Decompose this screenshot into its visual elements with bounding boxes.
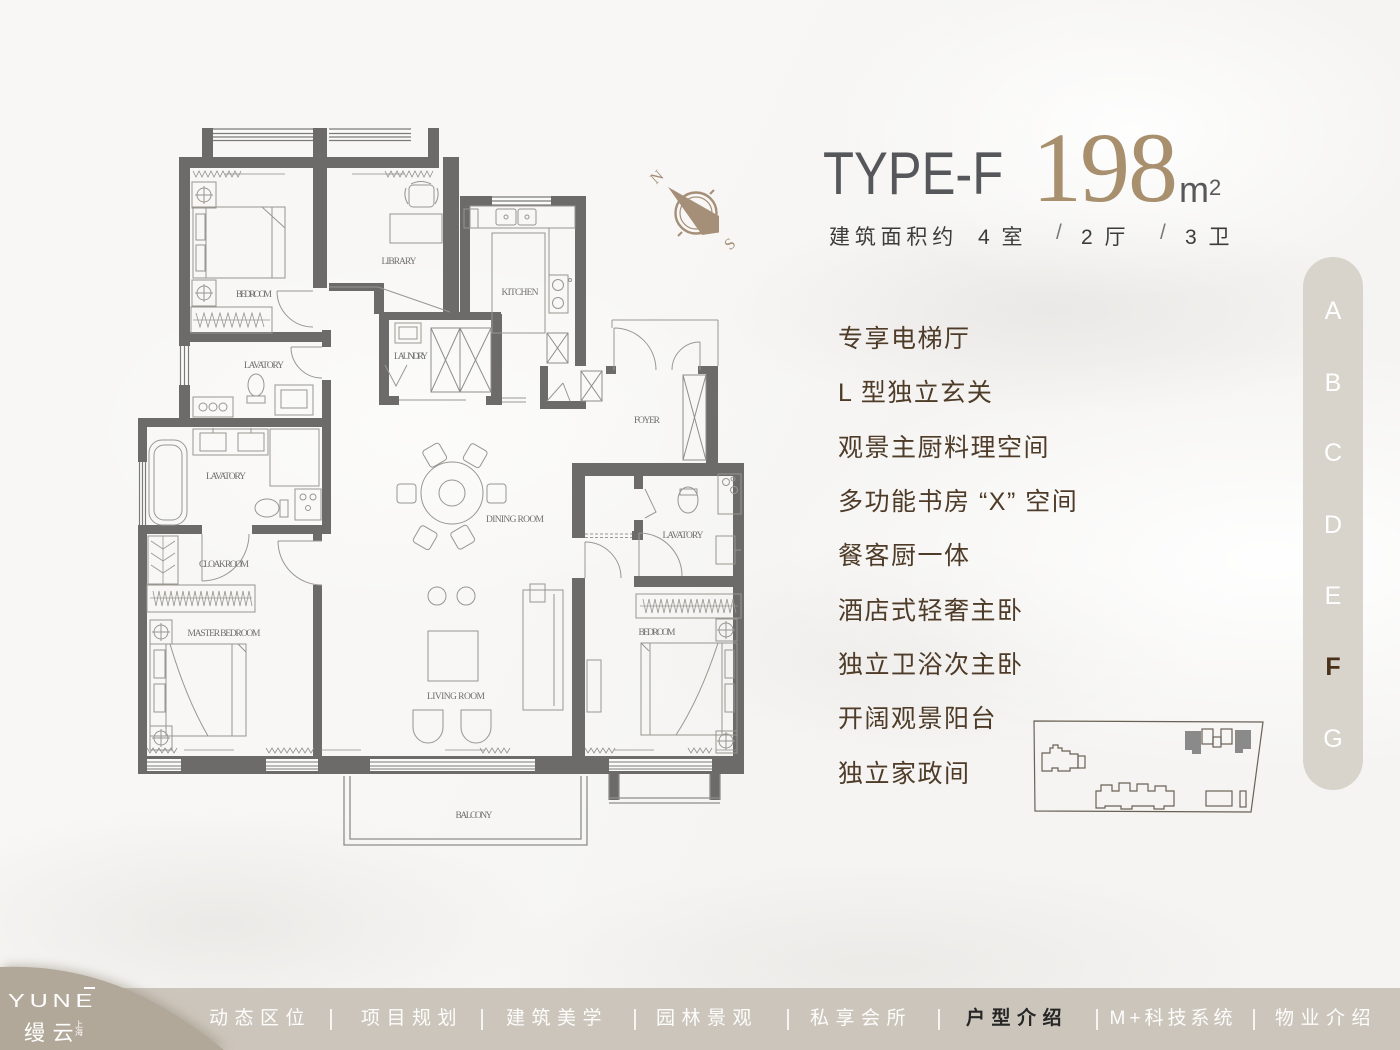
svg-text:LIBRARY: LIBRARY xyxy=(382,257,417,267)
svg-text:MASTER BEDROOM: MASTER BEDROOM xyxy=(188,629,262,639)
svg-text:CLOAK ROOM: CLOAK ROOM xyxy=(199,560,250,570)
svg-text:LAVATORY: LAVATORY xyxy=(663,531,704,541)
svg-text:BALCONY: BALCONY xyxy=(456,811,493,821)
svg-text:DINING ROOM: DINING ROOM xyxy=(486,515,545,525)
svg-text:BEDROOM: BEDROOM xyxy=(639,628,677,638)
svg-text:LIVING ROOM: LIVING ROOM xyxy=(427,692,486,702)
svg-text:FOYER: FOYER xyxy=(634,416,661,426)
svg-text:LAVATORY: LAVATORY xyxy=(244,361,284,371)
svg-text:LAUNDRY: LAUNDRY xyxy=(394,352,428,362)
svg-text:LAVATORY: LAVATORY xyxy=(206,472,246,482)
svg-text:N: N xyxy=(647,167,667,188)
svg-text:KITCHEN: KITCHEN xyxy=(502,288,539,298)
svg-text:S: S xyxy=(721,235,739,254)
svg-text:BEDROOM: BEDROOM xyxy=(236,290,273,300)
